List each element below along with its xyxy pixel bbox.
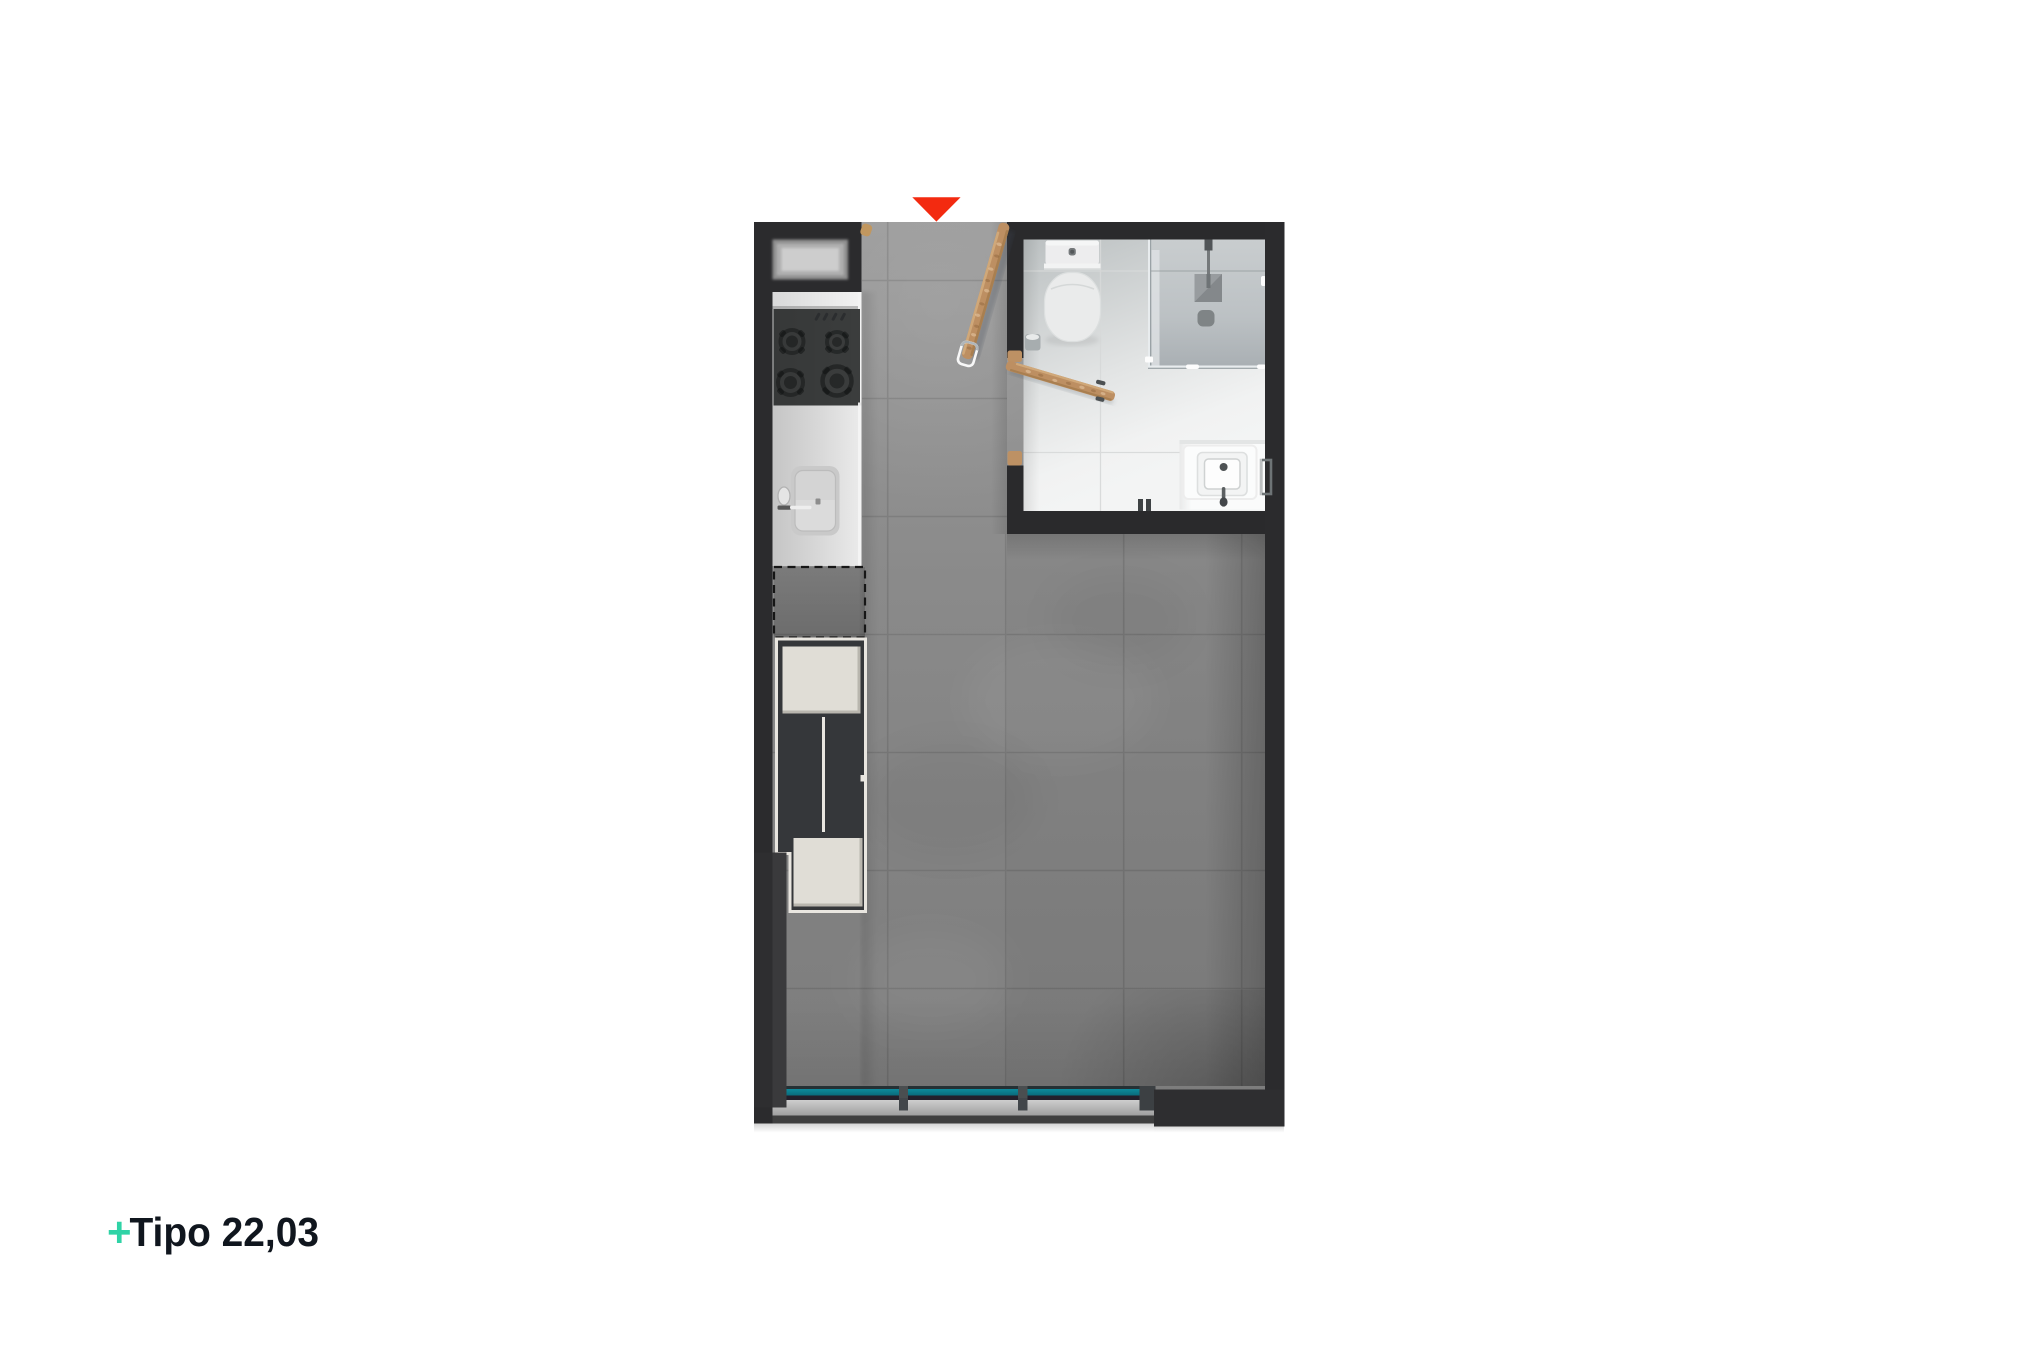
svg-text:Tipo 22,03: Tipo 22,03 xyxy=(130,1209,320,1255)
svg-text:+: + xyxy=(107,1209,132,1256)
